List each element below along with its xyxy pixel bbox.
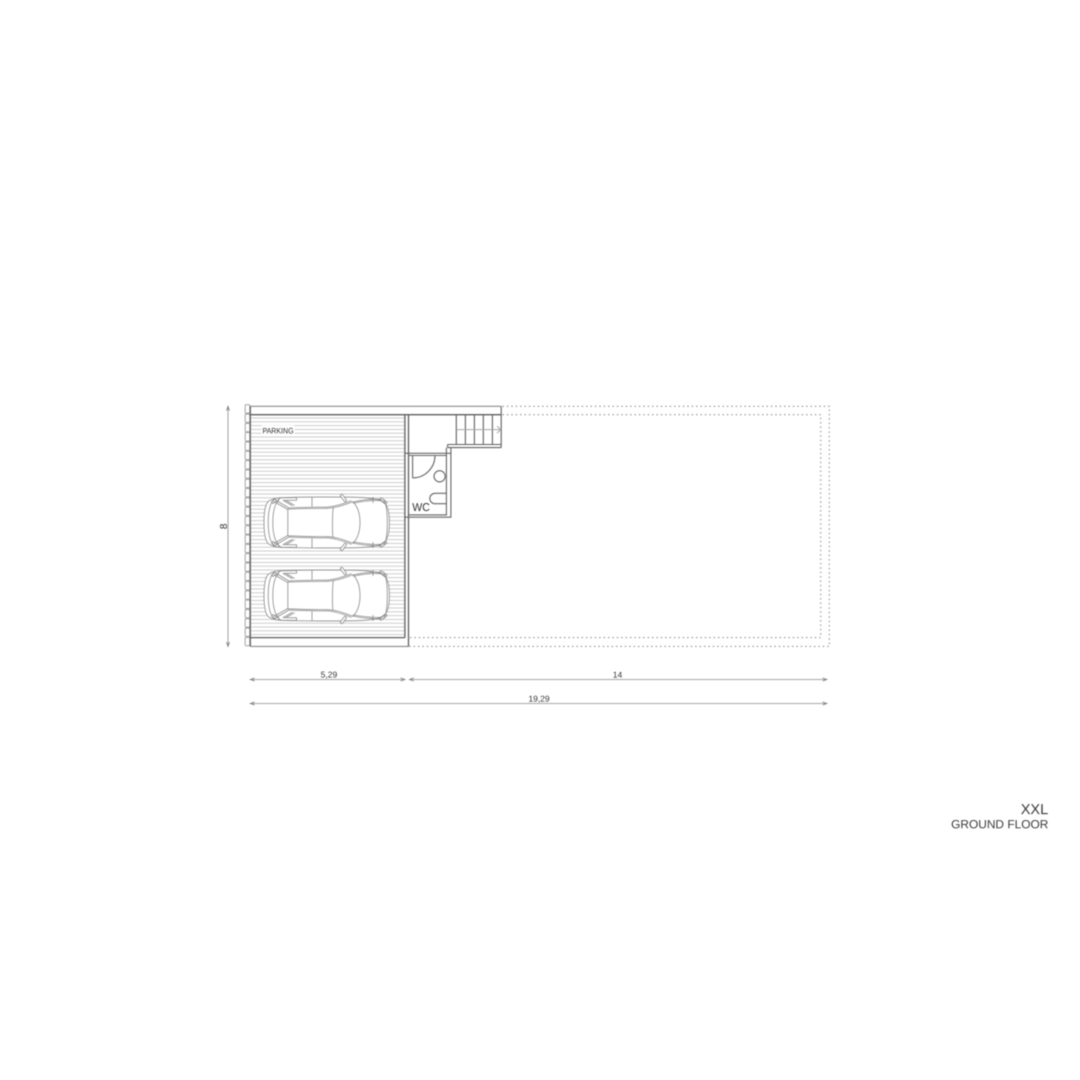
svg-text:8: 8 <box>219 523 230 529</box>
svg-text:XXL: XXL <box>1021 802 1049 818</box>
svg-text:WC: WC <box>412 502 430 515</box>
svg-text:14: 14 <box>613 670 623 680</box>
svg-text:PARKING: PARKING <box>262 426 293 436</box>
svg-text:GROUND FLOOR: GROUND FLOOR <box>951 817 1049 831</box>
svg-text:19,29: 19,29 <box>528 694 550 704</box>
svg-text:5,29: 5,29 <box>321 669 338 679</box>
